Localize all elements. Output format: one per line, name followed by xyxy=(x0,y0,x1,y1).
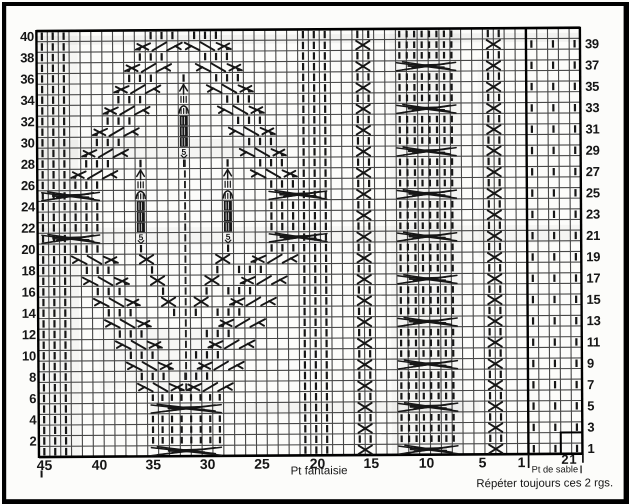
svg-text:13: 13 xyxy=(587,313,601,328)
svg-text:45: 45 xyxy=(37,457,53,473)
svg-text:26: 26 xyxy=(21,178,35,193)
svg-text:36: 36 xyxy=(20,72,34,87)
svg-text:Pt de sable: Pt de sable xyxy=(532,464,579,474)
svg-text:1: 1 xyxy=(518,454,526,470)
svg-text:40: 40 xyxy=(92,457,108,473)
svg-text:27: 27 xyxy=(586,164,600,179)
svg-text:9: 9 xyxy=(587,356,594,371)
svg-text:40: 40 xyxy=(20,29,34,44)
svg-text:35: 35 xyxy=(585,79,599,94)
svg-text:1: 1 xyxy=(587,441,594,456)
svg-text:23: 23 xyxy=(586,207,600,222)
svg-text:10: 10 xyxy=(22,348,36,363)
svg-text:19: 19 xyxy=(586,249,600,264)
svg-text:30: 30 xyxy=(200,456,216,472)
svg-text:5: 5 xyxy=(587,398,594,413)
svg-text:7: 7 xyxy=(587,377,594,392)
svg-text:18: 18 xyxy=(21,263,35,278)
svg-text:38: 38 xyxy=(20,50,34,65)
svg-text:Répéter toujours ces 2 rgs.: Répéter toujours ces 2 rgs. xyxy=(476,477,613,490)
svg-text:10: 10 xyxy=(419,455,435,471)
svg-text:8: 8 xyxy=(29,370,36,385)
svg-text:4: 4 xyxy=(29,412,37,427)
svg-text:37: 37 xyxy=(585,58,599,73)
svg-text:34: 34 xyxy=(20,93,35,108)
svg-text:20: 20 xyxy=(21,242,35,257)
svg-text:21: 21 xyxy=(586,228,600,243)
svg-text:31: 31 xyxy=(585,121,599,136)
svg-text:22: 22 xyxy=(21,221,35,236)
svg-text:24: 24 xyxy=(21,199,36,214)
svg-text:14: 14 xyxy=(22,306,37,321)
svg-text:16: 16 xyxy=(22,285,36,300)
svg-text:33: 33 xyxy=(585,100,599,115)
svg-text:12: 12 xyxy=(22,327,36,342)
svg-text:15: 15 xyxy=(363,455,379,471)
svg-text:5: 5 xyxy=(182,147,187,157)
svg-text:35: 35 xyxy=(145,456,161,472)
svg-text:30: 30 xyxy=(21,135,35,150)
svg-text:2: 2 xyxy=(29,434,36,449)
svg-text:28: 28 xyxy=(21,157,35,172)
svg-text:25: 25 xyxy=(586,185,600,200)
svg-text:Pt fantaisie: Pt fantaisie xyxy=(291,465,348,477)
svg-text:17: 17 xyxy=(586,270,600,285)
svg-text:11: 11 xyxy=(587,334,600,349)
svg-text:5: 5 xyxy=(479,454,487,470)
svg-text:25: 25 xyxy=(254,456,270,472)
svg-text:32: 32 xyxy=(21,114,35,129)
svg-text:3: 3 xyxy=(587,420,594,435)
svg-text:6: 6 xyxy=(29,391,36,406)
svg-text:15: 15 xyxy=(586,292,600,307)
svg-text:39: 39 xyxy=(585,36,599,51)
svg-text:29: 29 xyxy=(586,143,600,158)
